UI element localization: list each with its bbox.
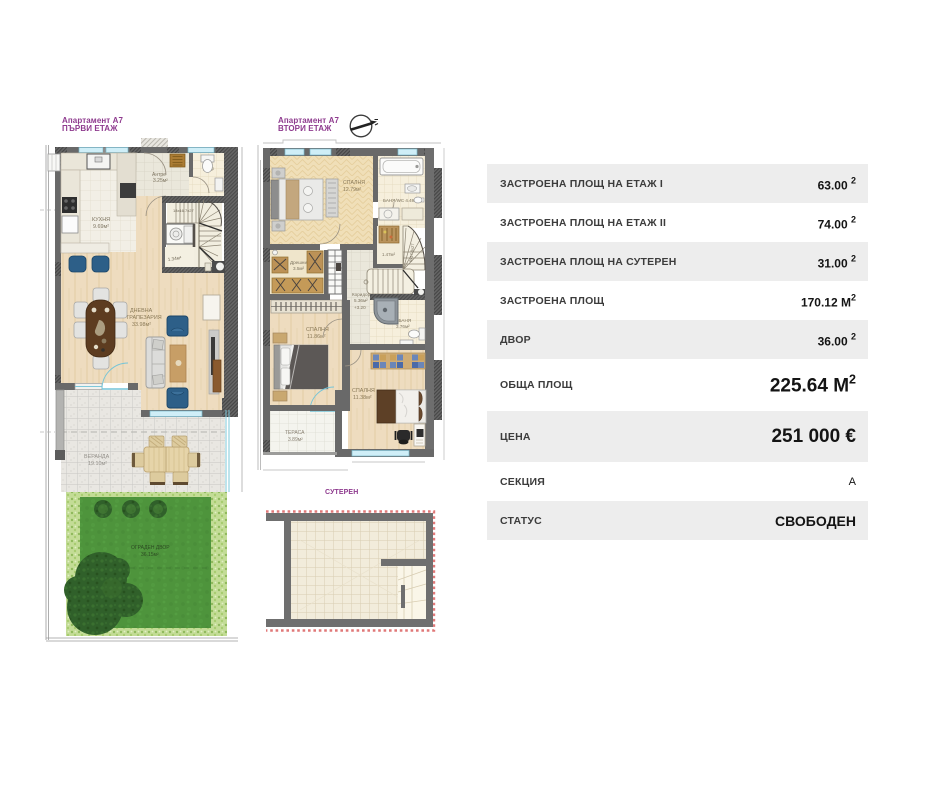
svg-text:3.5м²: 3.5м² xyxy=(293,266,305,271)
svg-text:1.47м²: 1.47м² xyxy=(382,252,396,257)
svg-text:36.15м²: 36.15м² xyxy=(141,552,159,558)
svg-text:ТРАПЕЗАРИЯ: ТРАПЕЗАРИЯ xyxy=(126,315,162,321)
svg-text:ОГРАДЕН ДВОР: ОГРАДЕН ДВОР xyxy=(131,545,170,551)
svg-text:19.10м²: 19.10м² xyxy=(88,461,107,467)
svg-text:3.25м²: 3.25м² xyxy=(153,178,168,184)
svg-text:3.76м²: 3.76м² xyxy=(396,324,410,329)
svg-text:5.36м²: 5.36м² xyxy=(354,298,368,303)
svg-text:СПАЛНЯ: СПАЛНЯ xyxy=(352,388,375,394)
svg-text:33.98м²: 33.98м² xyxy=(132,322,151,328)
svg-text:+3.20: +3.20 xyxy=(354,305,366,310)
svg-text:11.38м²: 11.38м² xyxy=(353,395,372,401)
svg-text:3.89м²: 3.89м² xyxy=(288,437,303,443)
svg-text:КУХНЯ: КУХНЯ xyxy=(92,217,110,223)
svg-text:9.69м²: 9.69м² xyxy=(93,224,109,230)
svg-text:12.79м²: 12.79м² xyxy=(343,187,362,193)
svg-text:ДНЕВНА: ДНЕВНА xyxy=(130,308,153,314)
svg-text:ТЕРАСА: ТЕРАСА xyxy=(285,430,305,436)
svg-text:ВЕРАНДА: ВЕРАНДА xyxy=(84,454,110,460)
svg-text:18x16.7х27: 18x16.7х27 xyxy=(173,208,194,213)
svg-text:СПАЛНЯ: СПАЛНЯ xyxy=(343,180,365,186)
